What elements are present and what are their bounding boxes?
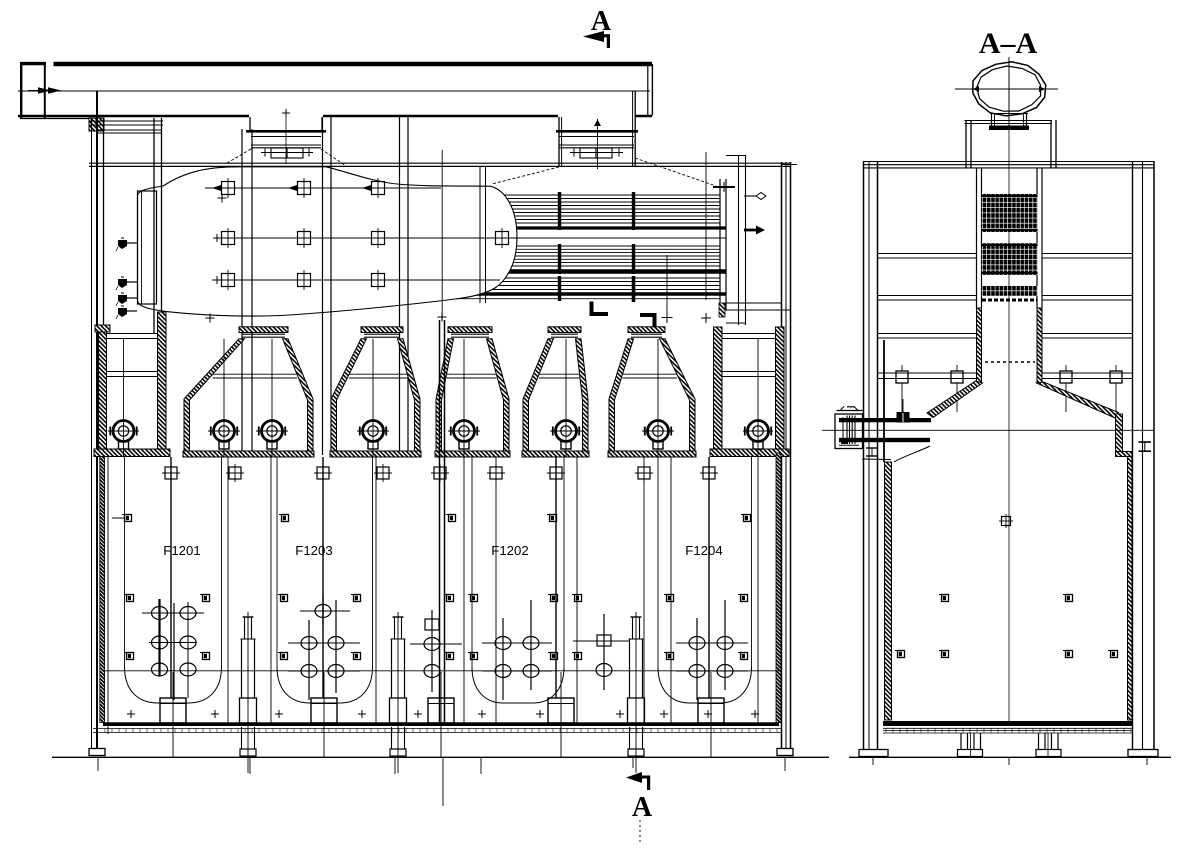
svg-text:F1203: F1203 (295, 543, 332, 558)
svg-text:F1202: F1202 (491, 543, 528, 558)
svg-text:F1204: F1204 (685, 543, 722, 558)
svg-text:F1201: F1201 (163, 543, 200, 558)
svg-text:A: A (591, 6, 612, 37)
svg-text:A: A (632, 792, 653, 823)
svg-text:A–A: A–A (979, 27, 1038, 60)
